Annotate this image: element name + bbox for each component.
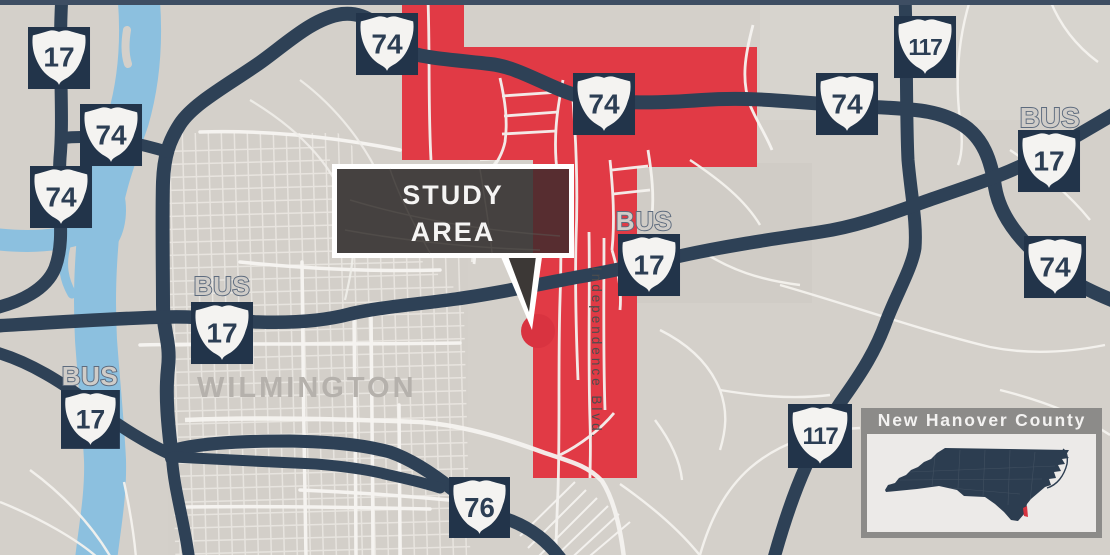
svg-text:76: 76 [464, 492, 495, 523]
svg-text:17: 17 [206, 318, 237, 349]
svg-text:74: 74 [1039, 252, 1071, 283]
svg-text:74: 74 [371, 29, 403, 60]
svg-text:74: 74 [588, 89, 620, 120]
svg-text:New Hanover County: New Hanover County [878, 410, 1086, 430]
svg-text:117: 117 [908, 34, 942, 60]
svg-text:17: 17 [43, 42, 74, 73]
svg-text:74: 74 [95, 120, 127, 151]
svg-text:BUS: BUS [62, 361, 118, 391]
svg-text:Independence Blvd.: Independence Blvd. [589, 267, 604, 440]
svg-text:STUDY: STUDY [402, 180, 504, 210]
svg-text:17: 17 [76, 405, 106, 435]
svg-text:117: 117 [802, 423, 838, 450]
svg-text:74: 74 [831, 89, 863, 120]
svg-text:WILMINGTON: WILMINGTON [197, 372, 417, 404]
svg-text:AREA: AREA [411, 217, 496, 247]
svg-text:BUS: BUS [1020, 102, 1081, 133]
svg-text:BUS: BUS [616, 206, 672, 236]
svg-text:17: 17 [1033, 146, 1064, 177]
svg-text:BUS: BUS [194, 271, 250, 301]
svg-text:17: 17 [633, 250, 664, 281]
svg-text:74: 74 [45, 182, 77, 213]
